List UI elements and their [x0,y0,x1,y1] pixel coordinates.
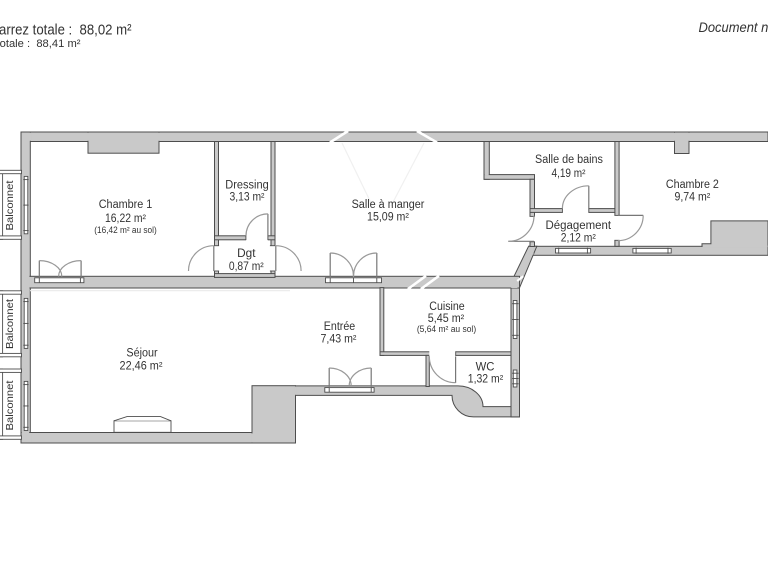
svg-text:1,32 m²: 1,32 m² [468,374,504,386]
svg-text:4,19 m²: 4,19 m² [552,168,586,180]
svg-text:Carrez totale : 88,02 m²: Carrez totale : 88,02 m² [0,22,132,39]
svg-text:0,87 m²: 0,87 m² [229,261,264,273]
svg-text:9,74 m²: 9,74 m² [675,192,711,204]
svg-text:Balconnet: Balconnet [5,180,16,230]
svg-text:16,22 m²: 16,22 m² [105,213,146,225]
svg-text:Chambre 1: Chambre 1 [99,199,153,211]
svg-text:Document no: Document no [699,20,768,35]
svg-text:Dgt: Dgt [237,248,256,260]
svg-text:(16,42 m² au sol): (16,42 m² au sol) [94,225,157,235]
svg-text:22,46 m²: 22,46 m² [120,361,163,373]
svg-text:Balconnet: Balconnet [5,299,16,349]
svg-text:WC: WC [476,362,495,374]
svg-text:Dressing: Dressing [225,180,268,192]
svg-text:Cuisine: Cuisine [429,301,464,313]
svg-text:15,09 m²: 15,09 m² [367,212,409,224]
svg-text:Séjour: Séjour [126,348,157,360]
svg-text:Dégagement: Dégagement [546,220,612,232]
svg-text:Salle à manger: Salle à manger [352,199,425,211]
svg-text:Chambre 2: Chambre 2 [666,179,719,191]
svg-text:2,12 m²: 2,12 m² [561,233,596,245]
svg-text:3,13 m²: 3,13 m² [230,192,265,204]
svg-text:Balconnet: Balconnet [5,380,16,430]
svg-text:(5,64 m² au sol): (5,64 m² au sol) [417,324,476,334]
svg-text:Salle de bains: Salle de bains [535,154,603,166]
svg-text:7,43 m²: 7,43 m² [321,334,357,346]
svg-text:totale : 88,41 m²: totale : 88,41 m² [0,38,81,50]
svg-text:Entrée: Entrée [324,321,355,333]
